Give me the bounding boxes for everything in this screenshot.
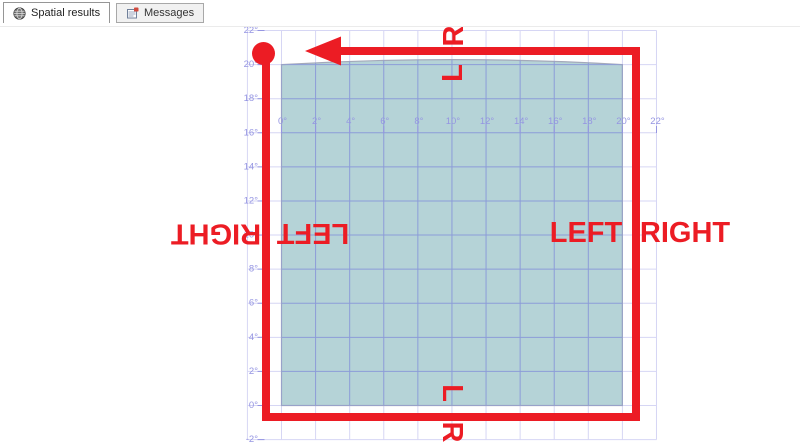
axis-tick-label: 18° <box>582 116 597 127</box>
axis-tick-label: 2° <box>312 116 321 127</box>
panel-separator <box>0 26 800 27</box>
axis-tick-label: 6° <box>380 116 389 127</box>
tab-label: Spatial results <box>31 7 100 19</box>
tab-messages[interactable]: Messages <box>116 3 204 23</box>
spatial-results-canvas[interactable]: 22°20°18°16°14°12°10°8°6°4°2°0°-2° 0°2°4… <box>0 0 800 446</box>
ring-start-dot <box>252 42 275 65</box>
axis-tick-label: 18° <box>244 93 259 104</box>
annotation-left-inside: LEFT <box>276 217 349 249</box>
axis-tick-label: 16° <box>548 116 563 127</box>
results-tab-bar: Spatial results Messages <box>0 0 800 22</box>
tab-spatial-results[interactable]: Spatial results <box>3 2 110 23</box>
annotation-right-inside: LEFT <box>550 217 623 249</box>
axis-tick-label: 10° <box>446 116 461 127</box>
axis-tick-label: 0° <box>278 116 287 127</box>
axis-tick-label: 4° <box>346 116 355 127</box>
annotation-top-outside: R <box>438 25 470 46</box>
axis-tick-label: -2° <box>246 434 258 445</box>
tab-label: Messages <box>144 7 194 19</box>
axis-tick-label: 12° <box>244 195 259 206</box>
axis-tick-label: 0° <box>249 400 258 411</box>
axis-tick-label: 4° <box>249 332 258 343</box>
annotation-bottom-outside: R <box>436 422 468 443</box>
axis-tick-label: 14° <box>244 161 259 172</box>
annotation-top-inside: L <box>437 64 469 82</box>
axis-tick-label: 20° <box>616 116 631 127</box>
globe-icon <box>13 7 26 20</box>
messages-icon <box>126 7 139 20</box>
annotation-bottom-inside: L <box>436 384 468 402</box>
axis-tick-label: 6° <box>249 298 258 309</box>
axis-tick-label: 16° <box>244 127 259 138</box>
direction-arrowhead-icon <box>305 37 341 66</box>
axis-tick-label: 22° <box>650 116 665 127</box>
axis-tick-label: 12° <box>480 116 495 127</box>
axis-tick-label: 14° <box>514 116 529 127</box>
axis-tick-label: 8° <box>249 264 258 275</box>
axis-tick-label: 2° <box>249 366 258 377</box>
annotation-left-outside: RIGHT <box>171 218 262 250</box>
annotation-right-outside: RIGHT <box>640 217 731 249</box>
axis-tick-label: 8° <box>414 116 423 127</box>
